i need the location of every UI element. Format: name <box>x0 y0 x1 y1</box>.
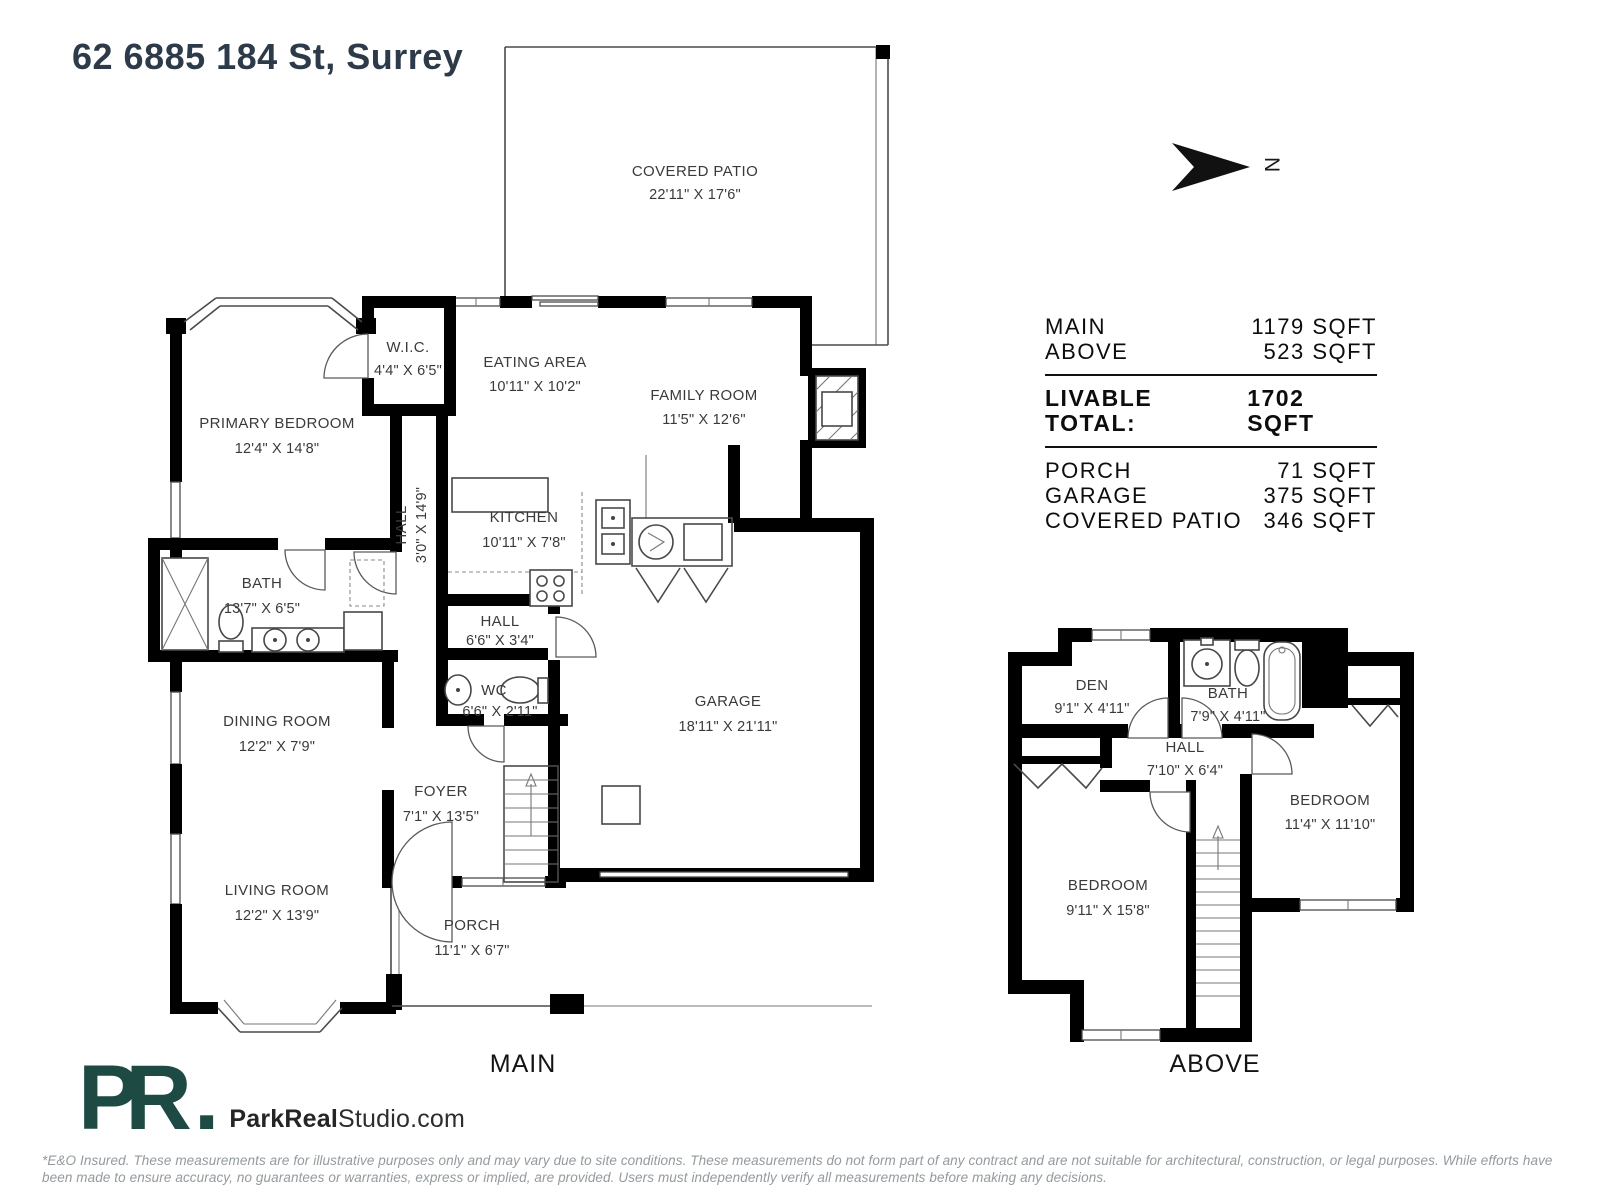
above-stairs <box>1196 826 1240 996</box>
room-dims: 4'4" X 6'5" <box>374 363 442 379</box>
room-label: EATING AREA <box>483 354 586 371</box>
room-dims: 11'5" X 12'6" <box>662 412 745 428</box>
room-label: GARAGE <box>695 693 762 710</box>
room-label: BATH <box>242 575 283 592</box>
room-dims: 11'1" X 6'7" <box>434 943 509 959</box>
brand-text: ParkRealStudio.com <box>229 1105 465 1134</box>
brand-logo: PR. ParkRealStudio.com <box>78 1058 465 1138</box>
room-dims: 7'1" X 13'5" <box>403 809 479 825</box>
room-label: BEDROOM <box>1290 792 1370 809</box>
room-label: PORCH <box>444 917 500 934</box>
room-dims: 6'6" X 2'11" <box>462 704 537 720</box>
room-dims: 12'2" X 7'9" <box>239 739 315 755</box>
floorplan-page: 62 6885 184 St, Surrey MAIN 1179 SQFT AB… <box>0 0 1600 1200</box>
room-label: FAMILY ROOM <box>650 387 757 404</box>
room-label: HALL <box>480 613 519 630</box>
room-dims: 7'9" X 4'11" <box>1190 709 1265 725</box>
room-label: FOYER <box>414 783 468 800</box>
room-dims: 18'11" X 21'11" <box>679 719 778 735</box>
room-dims: 11'4" X 11'10" <box>1285 817 1376 833</box>
water-heater <box>602 786 640 824</box>
logo-dot: . <box>194 1058 220 1138</box>
room-label: DEN <box>1076 677 1109 694</box>
room-label: PRIMARY BEDROOM <box>199 415 354 432</box>
room-label: HALL <box>1165 739 1204 756</box>
room-dims: 12'2" X 13'9" <box>235 908 320 924</box>
room-label: DINING ROOM <box>223 713 331 730</box>
laundry-closet <box>632 518 732 602</box>
room-label: WC <box>481 682 507 699</box>
main-floor-caption: MAIN <box>490 1050 557 1078</box>
north-arrow-icon: N <box>1172 143 1283 191</box>
room-label: HALL <box>393 505 410 544</box>
room-label: BATH <box>1208 685 1249 702</box>
room-dims: 6'6" X 3'4" <box>466 633 534 649</box>
room-dims: 10'11" X 7'8" <box>482 535 565 551</box>
room-label: LIVING ROOM <box>225 882 329 899</box>
brand-text-bold: ParkReal <box>229 1105 338 1133</box>
room-dims: 3'0" X 14'9" <box>414 487 430 563</box>
room-dims: 9'11" X 15'8" <box>1066 903 1149 919</box>
room-dims: 12'4" X 14'8" <box>235 441 320 457</box>
room-dims: 13'7" X 6'5" <box>224 601 300 617</box>
room-dims: 7'10" X 6'4" <box>1147 763 1223 779</box>
disclaimer-text: *E&O Insured. These measurements are for… <box>42 1152 1558 1186</box>
room-label: COVERED PATIO <box>632 163 758 180</box>
brand-text-light: Studio.com <box>338 1105 465 1133</box>
above-floor-caption: ABOVE <box>1169 1050 1260 1078</box>
room-dims: 9'1" X 4'11" <box>1054 701 1129 717</box>
north-label: N <box>1260 157 1283 172</box>
floorplan-drawing: N <box>0 0 1600 1200</box>
logo-monogram: PR <box>78 1058 178 1138</box>
room-dims: 22'11" X 17'6" <box>649 187 741 203</box>
room-dims: 10'11" X 10'2" <box>489 379 581 395</box>
fireplace <box>816 376 858 440</box>
room-label: BEDROOM <box>1068 877 1148 894</box>
room-label: W.I.C. <box>386 339 429 356</box>
room-label: KITCHEN <box>490 509 559 526</box>
